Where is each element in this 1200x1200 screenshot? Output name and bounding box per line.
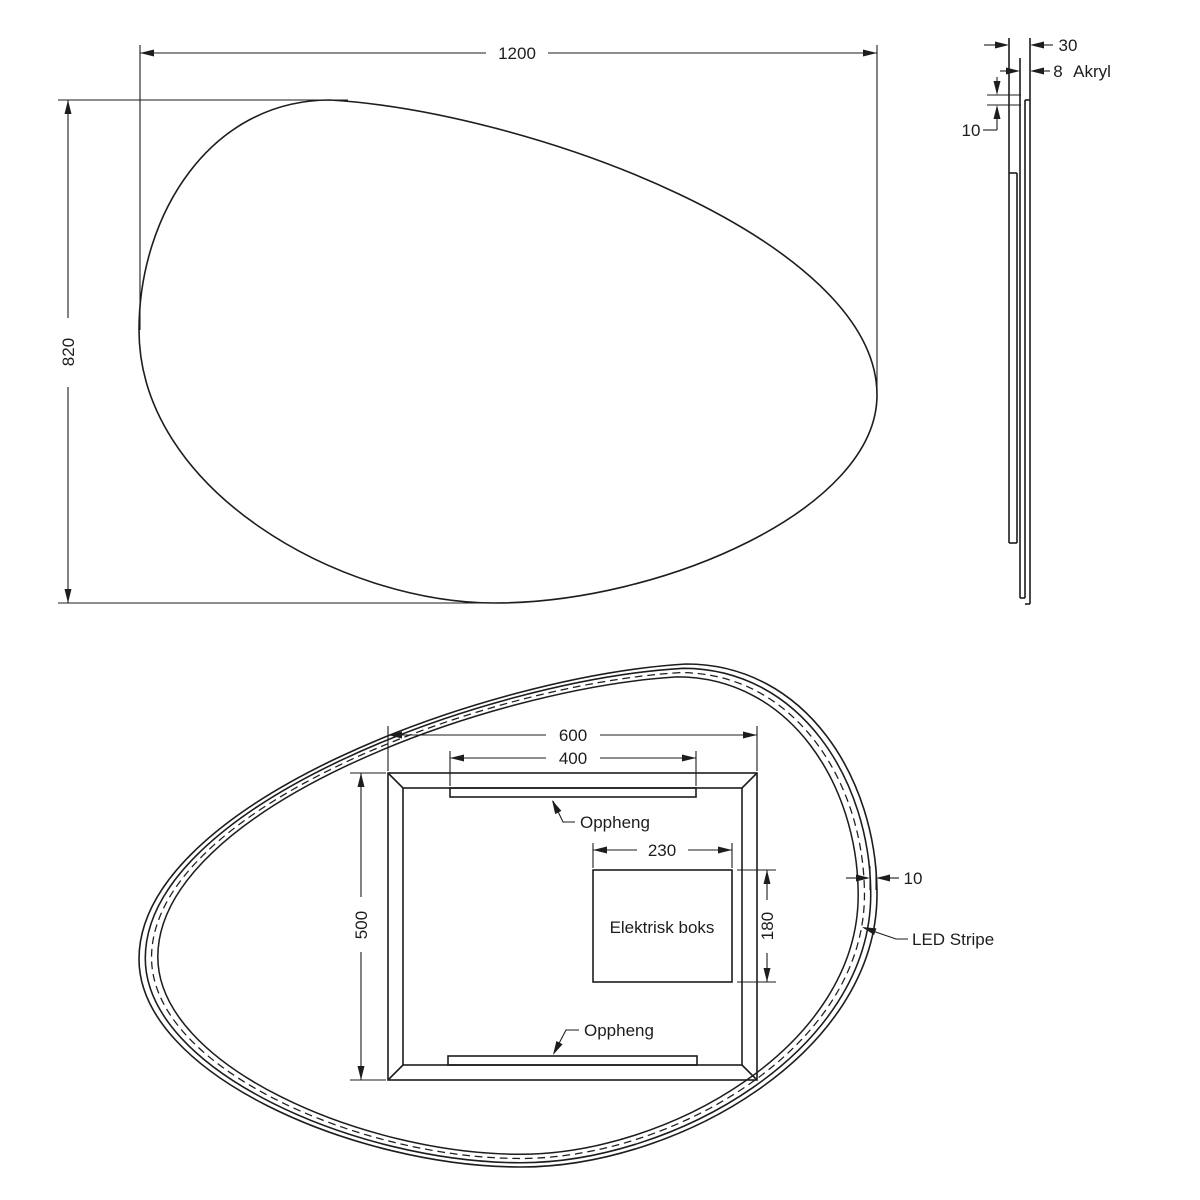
arrowhead-up-icon [358, 773, 365, 787]
acrylic-material-label: Akryl [1073, 62, 1111, 81]
technical-drawing-page: 1200 820 [0, 0, 1200, 1200]
back-view: Elektrisk boks 600 400 [139, 664, 994, 1167]
arrowhead-up-icon [65, 100, 72, 114]
dim-frame-width-label: 600 [559, 726, 587, 745]
arrowhead-right-icon [1006, 68, 1020, 75]
arrowhead-up-icon [764, 870, 771, 884]
mirror-outline [139, 100, 877, 603]
arrowhead-icon [552, 800, 561, 814]
led-stripe-label: LED Stripe [912, 930, 994, 949]
frame-miter [388, 1065, 403, 1080]
dim-side-offset-label: 10 [962, 121, 981, 140]
arrowhead-left-icon [1030, 68, 1044, 75]
hanger-bottom-callout: Oppheng [553, 1021, 654, 1055]
hanger-top-callout: Oppheng [552, 800, 650, 832]
dim-side-depth-label: 30 [1059, 36, 1078, 55]
arrowhead-left-icon [450, 755, 464, 762]
dim-edge-offset-label: 10 [904, 869, 923, 888]
arrowhead-down-icon [358, 1066, 365, 1080]
arrowhead-icon [553, 1041, 563, 1055]
electrical-box: Elektrisk boks [593, 870, 732, 982]
arrowhead-left-icon [140, 50, 154, 57]
dim-box-width: 230 [593, 841, 732, 868]
arrowhead-right-icon [863, 50, 877, 57]
dim-front-height-label: 820 [59, 338, 78, 366]
arrowhead-right-icon [995, 42, 1009, 49]
dim-box-height-label: 180 [758, 912, 777, 940]
side-profile [1009, 38, 1030, 604]
arrowhead-right-icon [682, 755, 696, 762]
arrowhead-left-icon [876, 875, 890, 882]
dim-front-width: 1200 [140, 44, 877, 392]
dim-hanger-width: 400 [450, 749, 696, 786]
dim-hanger-width-label: 400 [559, 749, 587, 768]
arrowhead-right-icon [743, 732, 757, 739]
mirror-technical-drawing: 1200 820 [0, 0, 1200, 1200]
arrowhead-down-icon [764, 968, 771, 982]
front-view: 1200 820 [58, 44, 877, 603]
dim-side-offset: 10 [962, 77, 1021, 140]
hanger-top-label: Oppheng [580, 813, 650, 832]
dim-frame-height-label: 500 [352, 911, 371, 939]
dim-box-width-label: 230 [648, 841, 676, 860]
side-view: 30 8 Akryl 10 [962, 36, 1111, 604]
frame-miter [742, 773, 757, 788]
arrowhead-right-icon [718, 847, 732, 854]
dim-front-width-label: 1200 [498, 44, 536, 63]
dim-frame-height: 500 [350, 773, 386, 1080]
dim-acrylic-thickness-label: 8 [1053, 62, 1062, 81]
hanger-bar-bottom [448, 1056, 697, 1065]
led-stripe-callout: LED Stripe [862, 927, 994, 949]
arrowhead-down-icon [994, 81, 1001, 95]
arrowhead-up-icon [994, 105, 1001, 119]
dim-acrylic-thickness: 8 Akryl [1000, 62, 1111, 81]
arrowhead-down-icon [65, 589, 72, 603]
hanger-bottom-label: Oppheng [584, 1021, 654, 1040]
arrowhead-right-icon [856, 875, 870, 882]
hanger-bar-top [450, 788, 696, 797]
frame-miter [388, 773, 403, 788]
arrowhead-icon [862, 927, 876, 935]
dim-front-height: 820 [58, 100, 505, 603]
arrowhead-left-icon [593, 847, 607, 854]
inner-edge-ring [158, 677, 858, 1154]
electrical-box-label: Elektrisk boks [610, 918, 715, 937]
arrowhead-left-icon [1030, 42, 1044, 49]
